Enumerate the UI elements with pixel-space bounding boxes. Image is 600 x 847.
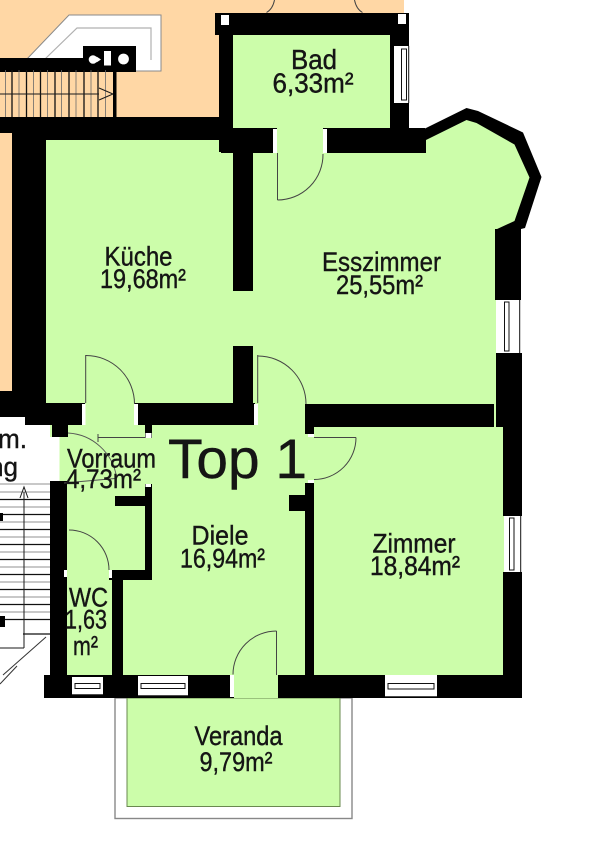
svg-text:16,94m²: 16,94m² (180, 544, 265, 574)
svg-text:6,33m²: 6,33m² (273, 68, 354, 99)
svg-text:ng: ng (0, 452, 18, 482)
svg-text:4,73m²: 4,73m² (66, 464, 141, 494)
svg-text:9,79m²: 9,79m² (200, 747, 273, 777)
svg-text:Top 1: Top 1 (168, 427, 307, 490)
svg-text:m²: m² (73, 631, 98, 661)
svg-text:19,68m²: 19,68m² (100, 264, 186, 294)
svg-text:m.: m. (0, 424, 27, 454)
svg-text:1,63: 1,63 (65, 605, 107, 635)
svg-text:25,55m²: 25,55m² (336, 270, 423, 300)
svg-text:18,84m²: 18,84m² (370, 551, 460, 581)
